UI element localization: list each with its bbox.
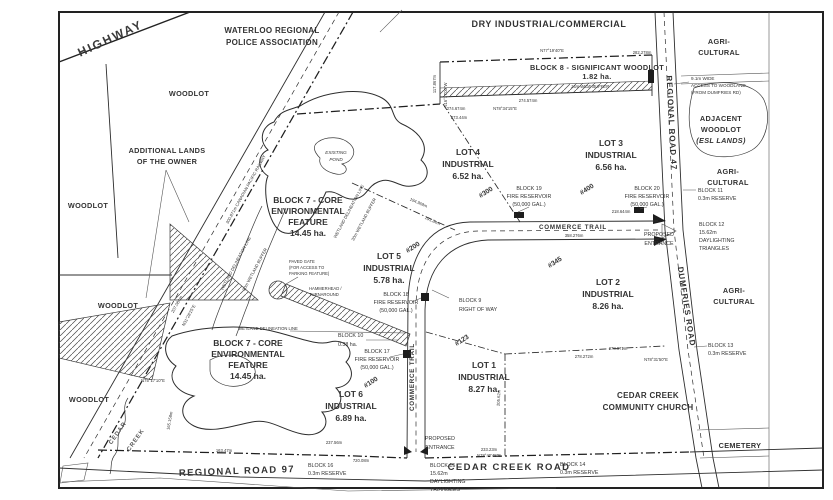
proposed-entrance-label: PROPOSED xyxy=(644,232,674,238)
dim-block8-west-bearing: N16°17'00"W xyxy=(443,83,448,108)
road-label-railway: 300.871m CANADIAN PACIFIC RAILWAY xyxy=(225,154,267,225)
block-20-label: BLOCK 20 xyxy=(634,186,659,192)
daylight-outline xyxy=(62,478,556,491)
creek-label: CREEK xyxy=(126,428,146,453)
block-18-label: FIRE RESERVOIR xyxy=(374,300,419,306)
lot-3-zoning: INDUSTRIAL xyxy=(585,150,636,160)
zone-woodlot: WOODLOT xyxy=(69,395,109,404)
road-label-dumfries-road: DUMFRIES ROAD xyxy=(676,266,697,347)
parcel-line xyxy=(380,10,402,32)
block-17-label: (50,000 GAL.) xyxy=(360,365,394,371)
zone-additional-lands: OF THE OWNER xyxy=(137,157,198,166)
address-300: #300 xyxy=(478,186,495,200)
dim-church-2: 278.272m xyxy=(575,354,594,359)
road-label-regional-road-97: REGIONAL ROAD 97 xyxy=(179,464,296,479)
lot-1-label: LOT 1 xyxy=(472,360,496,370)
dim-north-length: 282.278m xyxy=(633,50,652,55)
gate-note: (FOR ACCESS TO xyxy=(289,265,325,270)
dimension-labels: N77°19'40"E 282.278m 274.674m N78°34'15"… xyxy=(141,48,668,463)
buffer-note: 15m WIDE BUFFER xyxy=(571,84,609,89)
ccr-north-edge xyxy=(425,452,690,458)
lot-5-zoning: INDUSTRIAL xyxy=(363,263,414,273)
turnaround xyxy=(269,281,287,299)
block-8-label: BLOCK 8 - SIGNIFICANT WOODLOT xyxy=(530,63,664,72)
dim-church-bearing: N78°31'50"E xyxy=(644,357,668,362)
address-100: #100 xyxy=(363,376,380,390)
block-9-label: RIGHT OF WAY xyxy=(459,307,498,313)
zone-woodlot: WOODLOT xyxy=(68,201,108,210)
lot-3-area: 6.56 ha. xyxy=(595,162,626,172)
lot-6-zoning: INDUSTRIAL xyxy=(325,401,376,411)
block-7-label: FEATURE xyxy=(228,360,268,370)
block-12-label: DAYLIGHTING xyxy=(699,238,735,244)
block-16-label: 0.3m RESERVE xyxy=(308,471,347,477)
gate-note: PAVED GATE xyxy=(289,259,315,264)
block-9-label: BLOCK 9 xyxy=(459,298,481,304)
zone-church: CEDAR CREEK xyxy=(617,391,679,400)
dim-lot4-bearing: N78°34'15"E xyxy=(493,106,517,111)
block-7-label: BLOCK 7 - CORE xyxy=(213,338,283,348)
block-7-label: ENVIRONMENTAL xyxy=(211,349,285,359)
block-18-label: (50,000 GAL.) xyxy=(379,308,413,314)
dim-north-bearing: N77°19'40"E xyxy=(540,48,564,53)
lot-5-label: LOT 5 xyxy=(377,251,401,261)
lot-4-label: LOT 4 xyxy=(456,147,480,157)
lot-3-label: LOT 3 xyxy=(599,138,623,148)
block-20-label: (50,000 GAL.) xyxy=(630,202,664,208)
zone-additional-lands: ADDITIONAL LANDS xyxy=(129,146,206,155)
proposed-entrance-label: ENTRANCE xyxy=(425,445,455,451)
block-15-label: 15.62m xyxy=(430,471,448,477)
hammerhead-label: HAMMERHEAD / xyxy=(309,286,342,291)
block-17-label: FIRE RESERVOIR xyxy=(355,357,400,363)
north-boundary xyxy=(297,104,440,114)
lot-2-area: 8.26 ha. xyxy=(592,301,623,311)
lot-6-area: 6.89 ha. xyxy=(335,413,366,423)
access-note: 9.1m WIDE xyxy=(691,76,714,81)
road-island xyxy=(60,463,88,483)
block-7-area: 14.45 ha. xyxy=(290,228,326,238)
block-16-label: BLOCK 16 xyxy=(308,463,333,469)
block-12-label: BLOCK 12 xyxy=(699,222,724,228)
address-345: #345 xyxy=(547,256,564,270)
buffer-line xyxy=(236,208,286,336)
dim-west-bearing: N75°17'10"E xyxy=(141,378,165,383)
block-10-label: 0.38 ha. xyxy=(338,342,357,348)
label-leaders xyxy=(366,190,707,357)
block-19-label: (50,000 GAL.) xyxy=(512,202,546,208)
road-label-cedar-creek-road: CEDAR CREEK ROAD xyxy=(448,462,571,473)
dim-ccr-bearing: N78°40'45"E xyxy=(477,453,501,458)
block-18-label: BLOCK 18 xyxy=(383,292,408,298)
access-note: ACCESS TO WOODLAND xyxy=(691,83,746,88)
proposed-entrance-label: ENTRANCE xyxy=(644,241,674,247)
wetland-line-label: WETLAND DELINEATION LINE xyxy=(238,326,298,331)
fire-reservoir-marker xyxy=(514,212,524,218)
existing-pond-label: POND xyxy=(329,157,343,162)
block-7-label: BLOCK 7 - CORE xyxy=(273,195,343,205)
commerce-trail xyxy=(269,207,659,458)
zone-agricultural: AGRI- xyxy=(708,37,730,46)
block-11-label: BLOCK 11 xyxy=(698,188,723,194)
zone-police: POLICE ASSOCIATION xyxy=(226,38,318,47)
parcel-line xyxy=(106,64,118,258)
church-north-line xyxy=(505,346,665,354)
lot-2-zoning: INDUSTRIAL xyxy=(582,289,633,299)
zone-adjacent-woodlot: WOODLOT xyxy=(701,125,741,134)
block-19-label: FIRE RESERVOIR xyxy=(507,194,552,200)
block-7-label: FEATURE xyxy=(288,217,328,227)
existing-pond-label: EXISTING xyxy=(325,150,347,155)
block-12-label: 15.62m xyxy=(699,230,717,236)
access-note: (FROM DUMFRIES RD) xyxy=(691,90,741,95)
dim-lot45-b: 191.84m xyxy=(424,215,441,226)
dim-block8-west: 117.867m xyxy=(432,74,437,93)
lot-6-label: LOT 6 xyxy=(339,389,363,399)
dim-lot45-a: 194.969m xyxy=(409,197,429,209)
entrance-marker xyxy=(404,446,412,455)
block-10-label: BLOCK 10 xyxy=(338,333,363,339)
dim-commerce-length2: 218.644m xyxy=(612,209,631,214)
zone-adjacent-woodlot: (ESL LANDS) xyxy=(696,136,746,145)
block-11-label: 0.3m RESERVE xyxy=(698,196,737,202)
address-400: #400 xyxy=(579,183,596,197)
lot-1-area: 8.27 ha. xyxy=(468,384,499,394)
site-plan-map: HIGHWAY 300.871m CANADIAN PACIFIC RAILWA… xyxy=(0,0,833,500)
block-13-label: 0.3m RESERVE xyxy=(708,351,747,357)
trail-centerline xyxy=(416,230,658,452)
zone-agricultural: CULTURAL xyxy=(698,48,740,57)
block-15-label: TRIANGLES xyxy=(430,487,460,493)
lot-4-area: 6.52 ha. xyxy=(452,171,483,181)
plan-drawing: HIGHWAY 300.871m CANADIAN PACIFIC RAILWA… xyxy=(0,0,833,500)
proposed-entrance-label: PROPOSED xyxy=(425,436,455,442)
gate-note: PARKING FEATURE) xyxy=(289,271,330,276)
lot-4-zoning: INDUSTRIAL xyxy=(442,159,493,169)
dim-commerce-length: 358.276m xyxy=(565,233,584,238)
dim-block8-south: 274.574m xyxy=(519,98,538,103)
zone-church: COMMUNITY CHURCH xyxy=(603,403,694,412)
zone-police: WATERLOO REGIONAL xyxy=(224,26,319,35)
address-123: #123 xyxy=(454,334,471,348)
dim-lot4-length: 274.674m xyxy=(447,106,466,111)
zone-cemetery: CEMETERY xyxy=(719,441,762,450)
zone-agricultural: AGRI- xyxy=(723,286,745,295)
buffer-strip xyxy=(440,81,652,97)
zone-agricultural: CULTURAL xyxy=(707,178,749,187)
block-19-label: BLOCK 19 xyxy=(516,186,541,192)
road-label-commerce-trail: COMMERCE TRAIL xyxy=(409,343,416,411)
zone-dry-industrial: DRY INDUSTRIAL/COMMERCIAL xyxy=(472,19,627,29)
hatched-area xyxy=(59,303,170,380)
zone-adjacent-woodlot: ADJACENT xyxy=(700,114,742,123)
rr97-north-edge xyxy=(98,450,407,458)
zone-agricultural: AGRI- xyxy=(717,167,739,176)
block-13-label: BLOCK 13 xyxy=(708,343,733,349)
zone-agricultural: CULTURAL xyxy=(713,297,755,306)
block-12-label: TRIANGLES xyxy=(699,246,729,252)
block-17-label: BLOCK 17 xyxy=(364,349,389,355)
block-7-area: 14.45 ha. xyxy=(230,371,266,381)
zone-woodlot: WOODLOT xyxy=(98,301,138,310)
dim-rr97-2: 237.56m xyxy=(326,440,343,445)
dim-church-1: 278.971m xyxy=(609,346,628,351)
road-label-highway: HIGHWAY xyxy=(76,17,146,59)
dim-lot4-length2: 273.44m xyxy=(451,115,468,120)
fire-reservoir-marker xyxy=(421,293,429,301)
dim-church-west: 205.62m xyxy=(496,389,502,406)
road-label-commerce-trail: COMMERCE TRAIL xyxy=(539,224,607,231)
dim-rr97-1: 163.47m xyxy=(216,448,233,453)
block8-north xyxy=(440,55,652,62)
dim-rail-bearing: N31°28'25"E xyxy=(181,303,197,326)
zone-woodlot: WOODLOT xyxy=(169,89,209,98)
block-20-label: FIRE RESERVOIR xyxy=(625,194,670,200)
block-7-label: ENVIRONMENTAL xyxy=(271,206,345,216)
dim-ccr-length: 233.23m xyxy=(481,447,498,452)
gate-leader xyxy=(286,277,298,284)
highway: HIGHWAY xyxy=(59,10,402,62)
dim-rr97-3: 720.08m xyxy=(353,458,370,463)
lot-5-area: 5.78 ha. xyxy=(373,275,404,285)
block-labels: BLOCK 7 - CORE ENVIRONMENTAL FEATURE 14.… xyxy=(211,63,747,493)
lot-1-zoning: INDUSTRIAL xyxy=(458,372,509,382)
hammerhead-label: TURNAROUND xyxy=(309,292,339,297)
lot-2-label: LOT 2 xyxy=(596,277,620,287)
block-8-area: 1.82 ha. xyxy=(582,72,611,81)
rail-west-edge xyxy=(70,12,325,458)
block-15-label: DAYLIGHTING xyxy=(430,479,466,485)
dim-west-length: 165.158m xyxy=(165,411,173,431)
